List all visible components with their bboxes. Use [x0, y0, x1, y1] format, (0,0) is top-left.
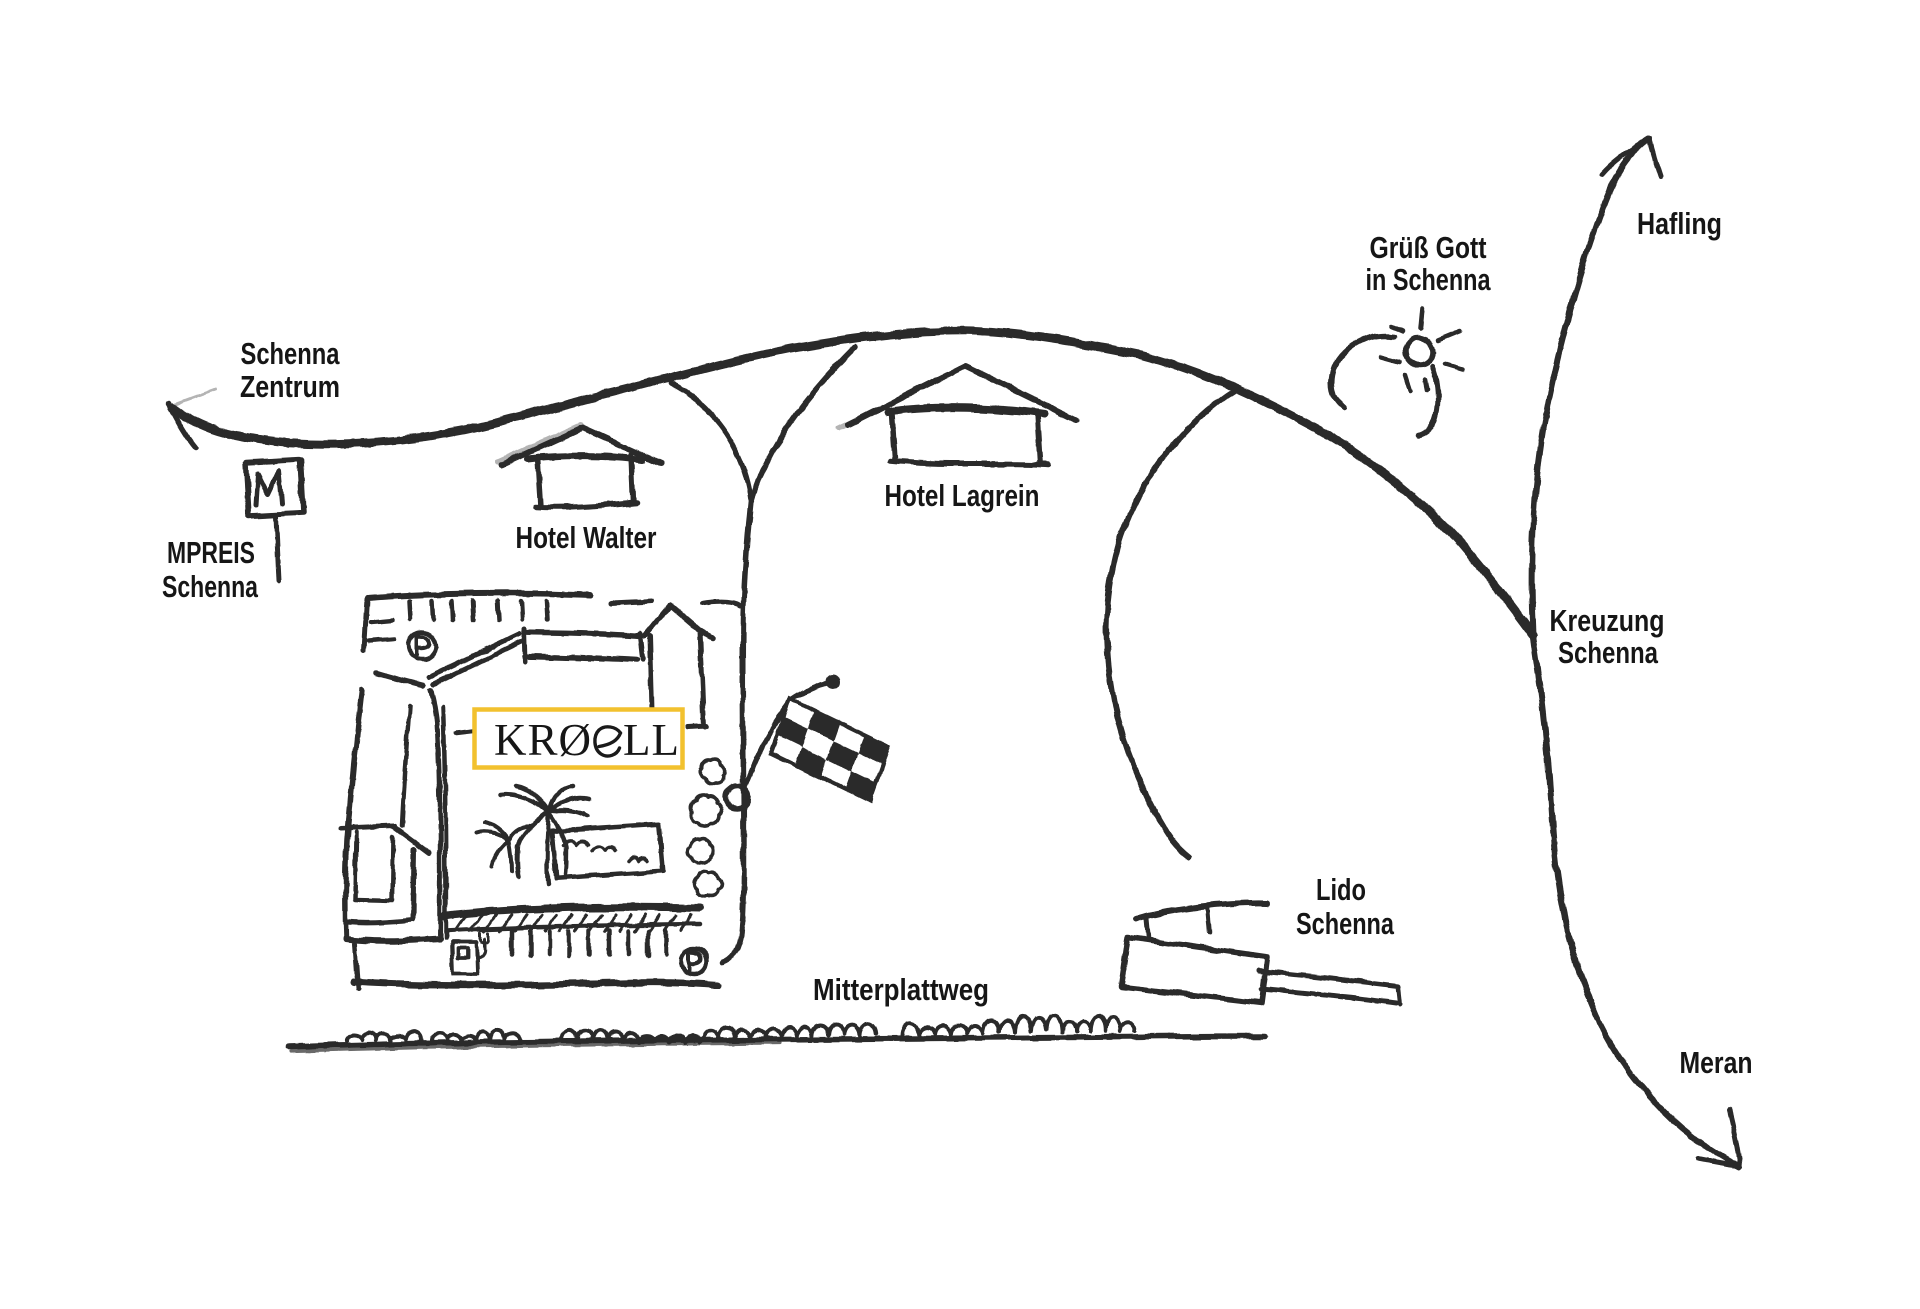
svg-text:KRØ: KRØ [494, 715, 592, 765]
svg-text:Mitterplattweg: Mitterplattweg [813, 972, 989, 1007]
svg-text:Hotel Walter: Hotel Walter [516, 520, 657, 555]
svg-text:Schenna: Schenna [1558, 635, 1659, 670]
svg-text:Schenna: Schenna [241, 336, 341, 371]
svg-text:Zentrum: Zentrum [240, 369, 340, 404]
svg-text:Hotel Lagrein: Hotel Lagrein [885, 478, 1040, 513]
svg-text:Grüß Gott: Grüß Gott [1370, 230, 1487, 265]
svg-text:Meran: Meran [1680, 1045, 1753, 1080]
svg-text:Schenna: Schenna [162, 569, 259, 604]
svg-text:Lido: Lido [1316, 872, 1366, 907]
svg-text:Kreuzung: Kreuzung [1550, 603, 1665, 638]
svg-text:MPREIS: MPREIS [167, 535, 255, 570]
svg-text:Schenna: Schenna [1296, 906, 1395, 941]
svg-text:Hafling: Hafling [1637, 206, 1722, 241]
svg-text:in Schenna: in Schenna [1366, 262, 1492, 297]
svg-text:LL: LL [623, 715, 680, 765]
